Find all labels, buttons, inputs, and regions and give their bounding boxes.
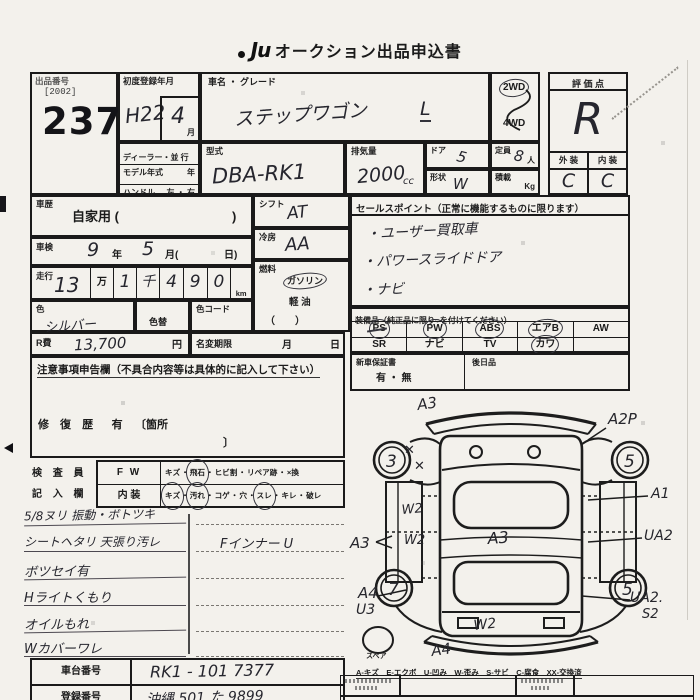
equip-abs-cell: ABS <box>463 322 518 337</box>
namechange-label: 名変期限 <box>196 339 232 349</box>
fuel-gasoline: ガソリン <box>287 276 323 286</box>
ext-int-values: C C <box>550 170 626 196</box>
equip-ps-cell: PS <box>352 322 407 337</box>
spare-tire <box>363 627 393 653</box>
interior-row-label: 内 装 <box>98 485 161 507</box>
mileage-sen-value: 1 <box>113 268 137 298</box>
int-opt-ana: 穴 <box>239 491 247 500</box>
displacement-box: 排気量 2000 cc <box>345 142 425 195</box>
note-text-2: シートヘタリ 天張り汚レ <box>24 535 160 549</box>
wheel-rl-mark: 7 <box>388 580 399 600</box>
margin-arrow-icon <box>4 443 13 453</box>
rating-label: 評 価 点 <box>572 79 604 89</box>
inspection-month: 5 <box>142 238 154 260</box>
equip-pw: PW <box>427 322 443 336</box>
color-box: 色 シルバー <box>30 300 135 332</box>
mileage-digit1: 4 <box>159 268 183 298</box>
inspection-box: 車検 9 年 5 月( 日) <box>30 237 253 266</box>
anno-u3: U3 <box>356 602 375 618</box>
int-opt-yabure: 破レ <box>306 491 321 500</box>
fw-options: キズ・飛石・ヒビ割・リペア跡・×換 <box>161 462 343 484</box>
repair-label: 修 復 歴 <box>38 419 97 431</box>
rfee-value: 13,700 <box>74 334 127 355</box>
equip-sr-cell: SR <box>352 338 407 353</box>
inspection-year: 9 <box>87 239 99 261</box>
shape-value: W <box>453 175 468 193</box>
spare-label: スペア <box>366 652 387 660</box>
mileage-digit2: 9 <box>183 268 207 298</box>
repair-loc-open: 〔箇所 <box>135 419 168 431</box>
namechange-month: 月 <box>282 340 292 352</box>
equip-ps: PS <box>373 322 386 336</box>
inspection-month-unit: 月( <box>165 250 178 262</box>
inspector-line1: 検 査 員 <box>32 463 88 484</box>
drive-type-box: 2WD 4WD <box>490 72 540 142</box>
damage-diagram: スペア A3 A2P ✕ ✕ 3 5 7 5 A1 UA2 W2 W2 A3 A… <box>348 392 683 660</box>
rating-header: 評 価 点 <box>550 74 626 91</box>
registration-label: 登録番号 <box>32 686 132 700</box>
history-close: ) <box>232 209 236 225</box>
note-text-1: 5/8ヌリ 振動・ボトツキ <box>24 507 155 523</box>
equip-leather: カワ <box>535 338 555 352</box>
dealer-rows-box: ディーラー・並 行 モデル年式 年 ハンドル 左 ・ 右 <box>118 142 200 195</box>
ju-logo: Ju <box>251 38 271 62</box>
chassis-value: RK1 - 101 7377 <box>132 658 343 686</box>
model-code-value: DBA-RK1 <box>211 160 306 189</box>
separator: ・ <box>231 491 239 500</box>
fuel-diesel: 軽 油 <box>289 298 311 309</box>
recolor-label: 色替 <box>149 317 167 327</box>
colorcode-label: 色コード <box>196 305 230 315</box>
note-right-line-2: Fインナー U <box>196 533 344 552</box>
anno-ua2-rear: UA2. <box>630 590 663 606</box>
equip-abs: ABS <box>479 322 500 336</box>
displacement-label: 排気量 <box>351 147 377 157</box>
anno-a4-rear: A4 <box>429 639 452 660</box>
anno-w2-left1: W2 <box>401 501 423 518</box>
first-reg-month: 4 <box>171 104 185 129</box>
month-unit: 月 <box>187 128 195 137</box>
exhibit-label: 出品番号 <box>35 77 69 87</box>
inspection-year-unit: 年 <box>112 250 122 262</box>
notes-divider <box>188 514 190 654</box>
repair-loc-close: 〕 <box>223 437 234 449</box>
note-line-3: ボツセイ有 <box>24 559 186 581</box>
fw-opt-hibiware: ヒビ割 <box>215 468 238 477</box>
equip-aw: AW <box>593 323 609 334</box>
anno-s2: S2 <box>642 607 659 622</box>
warranty-cell: 新車保証書 有 ・ 無 <box>352 355 465 389</box>
exhibit-number-box: 出品番号 [2002] 237 <box>30 72 118 195</box>
illegible-label <box>355 686 377 690</box>
capacity-unit: 人 <box>527 156 535 165</box>
note-line-4: Hライトくもり <box>24 587 186 606</box>
sales-header-row: セールスポイント（正常に機能するものに限ります） <box>352 197 628 216</box>
fw-opt-repair: リペア跡 <box>247 468 277 477</box>
km-unit: km <box>230 268 251 298</box>
anno-a4-left: A4 <box>357 584 378 602</box>
recolor-box: 色替 <box>135 300 190 332</box>
man-unit: 万 <box>90 268 113 298</box>
equip-empty-cell <box>574 338 628 353</box>
car-name-box: 車名 ・ グレード ステップワゴン L <box>200 72 490 142</box>
anno-x2: ✕ <box>414 459 425 474</box>
fw-opt-kizu: キズ <box>165 468 180 477</box>
equipment-box: 装備品（純正品に限り○を付けてください） PS PW ABS エアB AW SR… <box>350 307 630 353</box>
anno-ua2: UA2 <box>644 528 673 544</box>
capacity-label: 定員 <box>495 146 511 155</box>
registration-row: 登録番号 沖縄 501 た 9899 <box>32 686 343 700</box>
sales-point-1: ・ユーザー買取車 <box>366 218 479 244</box>
separator: ・ <box>238 468 246 477</box>
rating-box: 評 価 点 R 外 装 内 装 C C <box>548 72 628 195</box>
note-right-line-5 <box>196 613 344 632</box>
shift-label: シフト <box>259 200 285 210</box>
note-text-6: Wカバーワレ <box>24 642 102 657</box>
equip-sr: SR <box>372 339 386 350</box>
fuel-other: （ ） <box>265 316 305 328</box>
exhibit-code: [2002] <box>44 87 76 97</box>
bottom-right-cell-1 <box>340 675 400 696</box>
shape-box: 形状 W <box>425 169 490 195</box>
capacity-box: 定員 8 人 <box>490 142 540 169</box>
inspection-label: 車検 <box>36 243 53 253</box>
shift-value: AT <box>286 202 309 224</box>
repair-value: 有 <box>112 419 123 431</box>
car-body <box>440 436 582 636</box>
ac-label: 冷房 <box>259 233 276 243</box>
int-opt-sure: スレ <box>257 485 272 507</box>
history-label: 車歴 <box>36 200 53 210</box>
scan-blob <box>0 196 6 212</box>
rating-value-area: R <box>550 91 626 151</box>
mileage-box: 走行 13 万 1 千 4 9 0 km <box>30 266 253 300</box>
chassis-row: 車台番号 RK1 - 101 7377 <box>32 660 343 686</box>
repair-history-row: 修 復 歴 有 〔箇所 〕 <box>38 415 343 451</box>
anno-a1: A1 <box>650 486 669 502</box>
equip-aw-cell: AW <box>574 322 628 337</box>
sales-point-3: ・ナビ <box>362 278 405 299</box>
int-opt-yogore: 汚れ <box>190 485 205 507</box>
equipment-row-1: PS PW ABS エアB AW <box>352 321 628 338</box>
equip-pw-cell: PW <box>407 322 462 337</box>
bottom-right-row-2 <box>340 696 694 700</box>
note-right-line-3 <box>196 560 344 579</box>
warranty-box: 新車保証書 有 ・ 無 後日品 <box>350 353 630 391</box>
mileage-man-value: 13 <box>54 273 79 297</box>
model-code-box: 型式 DBA-RK1 <box>200 142 345 195</box>
dealer-row-label: ディーラー・並 行 <box>123 153 189 162</box>
fw-row-label: F W <box>98 462 161 484</box>
equipment-row-2: SR ナビ TV カワ <box>352 338 628 353</box>
bottom-right-cell-2 <box>400 675 516 696</box>
illegible-label <box>345 679 391 683</box>
history-value: 自家用 ( <box>72 209 119 225</box>
model-year-row: モデル年式 年 <box>120 165 198 185</box>
sales-point-2: ・パワースライドドア <box>362 247 502 272</box>
id-table: 車台番号 RK1 - 101 7377 登録番号 沖縄 501 た 9899 <box>30 658 345 700</box>
anno-front-a3: A3 <box>415 393 438 414</box>
color-label: 色 <box>36 305 45 315</box>
exterior-label: 外 装 <box>550 153 589 168</box>
separator: ・ <box>278 468 286 477</box>
auction-sheet-scan: Ju オークション出品申込書 出品番号 [2002] 237 初度登録年月 H2… <box>0 0 700 700</box>
displacement-unit: cc <box>403 176 414 187</box>
notice-box: 注意事項申告欄（不具合内容等は具体的に記入して下さい） 修 復 歴 有 〔箇所 … <box>30 356 345 458</box>
note-text-3: ボツセイ有 <box>24 564 89 580</box>
sales-header: セールスポイント（正常に機能するものに限ります） <box>356 204 584 215</box>
inspector-line2: 記 入 欄 <box>32 484 88 505</box>
form-title: Ju オークション出品申込書 <box>0 38 700 62</box>
sales-points-box: セールスポイント（正常に機能するものに限ります） ・ユーザー買取車 ・パワースラ… <box>350 195 630 307</box>
load-label: 積載 <box>495 173 511 182</box>
notice-header: 注意事項申告欄（不具合内容等は具体的に記入して下さい） <box>37 362 320 378</box>
shape-label: 形状 <box>430 173 446 182</box>
colorcode-box: 色コード <box>190 300 253 332</box>
fw-row: F W キズ・飛石・ヒビ割・リペア跡・×換 <box>98 462 343 485</box>
capacity-value: 8 <box>513 146 526 165</box>
equip-tv-cell: TV <box>463 338 518 353</box>
fuel-label: 燃料 <box>259 265 276 275</box>
car-name-value: ステップワゴン <box>233 95 368 131</box>
separator: ・ <box>298 491 306 500</box>
note-right-line-6 <box>196 638 344 657</box>
anno-a3-center: A3 <box>486 528 509 548</box>
grade-value: L <box>420 98 431 122</box>
anno-a3-left: A3 <box>349 534 370 552</box>
ac-box: 冷房 AA <box>253 228 350 260</box>
yen-unit: 円 <box>172 340 182 352</box>
interior-row: 内 装 キズ・汚れ・コゲ・穴・スレ・キレ・破レ <box>98 485 343 507</box>
anno-w2-rear: W2 <box>473 616 497 634</box>
note-right-line-1 <box>196 506 344 525</box>
anno-a2p: A2P <box>607 410 638 428</box>
door-box: ドア 5 <box>425 142 490 169</box>
scan-speckles <box>2 2 4 4</box>
interior-label: 内 装 <box>589 153 626 168</box>
car-name-label: 車名 ・ グレード <box>208 77 276 87</box>
fuel-box: 燃料 ガソリン 軽 油 （ ） <box>253 260 350 332</box>
warranty-label: 新車保証書 <box>356 358 396 367</box>
door-value: 5 <box>455 147 469 167</box>
load-unit: Kg <box>524 182 535 191</box>
bottom-right-cell-3 <box>516 675 574 696</box>
note-line-2: シートヘタリ 天張り汚レ <box>24 533 186 552</box>
inspector-grid: F W キズ・飛石・ヒビ割・リペア跡・×換 内 装 キズ・汚れ・コゲ・穴・スレ・… <box>96 460 345 508</box>
displacement-value: 2000 <box>356 162 406 188</box>
door-label: ドア <box>430 146 446 155</box>
first-reg-label: 初度登録年月 <box>123 77 174 87</box>
history-box: 車歴 自家用 ( ) <box>30 195 253 237</box>
namechange-day: 日 <box>330 340 340 352</box>
fw-opt-tobiishi: 飛石 <box>190 462 205 484</box>
equip-tv: TV <box>484 339 497 350</box>
note-line-6: Wカバーワレ <box>24 638 186 657</box>
handwritten-stroke <box>492 74 542 144</box>
anno-w2-left2: W2 <box>404 533 425 548</box>
equip-navi-cell: ナビ <box>407 338 462 353</box>
rfee-box: R費 13,700 円 <box>30 332 190 356</box>
inspector-column-label: 検 査 員 記 入 欄 <box>32 463 88 505</box>
note-right-line-4 <box>196 587 344 606</box>
year-unit: 年 <box>187 168 195 184</box>
mileage-digit3: 0 <box>207 268 231 298</box>
sen-unit: 千 <box>136 268 159 298</box>
ac-value: AA <box>284 233 310 256</box>
chassis-label: 車台番号 <box>32 660 132 684</box>
note-right-text: Fインナー U <box>220 537 293 552</box>
logo-dot-icon <box>238 51 245 58</box>
rfee-label: R費 <box>36 338 52 348</box>
note-text-4: Hライトくもり <box>24 591 112 606</box>
equip-navi: ナビ <box>425 339 445 350</box>
ext-int-header: 外 装 内 装 <box>550 151 626 170</box>
shift-box: シフト AT <box>253 195 350 228</box>
exhibit-number: 237 <box>42 100 122 143</box>
dealer-row: ディーラー・並 行 <box>120 144 198 165</box>
mileage-grid: 万 1 千 4 9 0 km <box>90 268 251 298</box>
int-opt-koge: コゲ <box>215 491 230 500</box>
note-line-5: オイルもれ <box>24 612 186 634</box>
form-title-text: オークション出品申込書 <box>275 44 462 61</box>
later-items-label: 後日品 <box>472 358 496 367</box>
note-line-1: 5/8ヌリ 振動・ボトツキ <box>24 505 186 527</box>
int-opt-kizu: キズ <box>165 485 180 507</box>
first-reg-month-box: 4 月 <box>160 96 200 142</box>
illegible-label <box>531 686 551 690</box>
mileage-label: 走行 <box>36 272 53 282</box>
anno-x1: ✕ <box>404 443 415 458</box>
interior-grade: C <box>589 170 626 196</box>
inspection-day-unit: 日) <box>224 250 237 262</box>
rating-value: R <box>573 94 604 145</box>
wheel-fl-mark: 3 <box>386 452 397 472</box>
load-box: 積載 Kg <box>490 169 540 195</box>
exterior-grade: C <box>550 170 589 196</box>
int-opt-kire: キレ <box>281 491 296 500</box>
front-bumper <box>426 413 596 424</box>
bottom-right-cell-4 <box>574 675 694 696</box>
scan-edge-line <box>687 60 688 620</box>
note-text-5: オイルもれ <box>24 617 89 633</box>
equip-leather-cell: カワ <box>518 338 573 353</box>
illegible-label <box>521 679 565 683</box>
fw-opt-koukan: ×換 <box>287 468 299 477</box>
model-year-label: モデル年式 <box>123 168 163 184</box>
interior-options: キズ・汚れ・コゲ・穴・スレ・キレ・破レ <box>161 485 343 507</box>
namechange-box: 名変期限 月 日 <box>190 332 345 356</box>
warranty-options: 有 ・ 無 <box>376 373 412 385</box>
model-code-label: 型式 <box>206 147 223 157</box>
wheel-fr-mark: 5 <box>624 452 635 472</box>
